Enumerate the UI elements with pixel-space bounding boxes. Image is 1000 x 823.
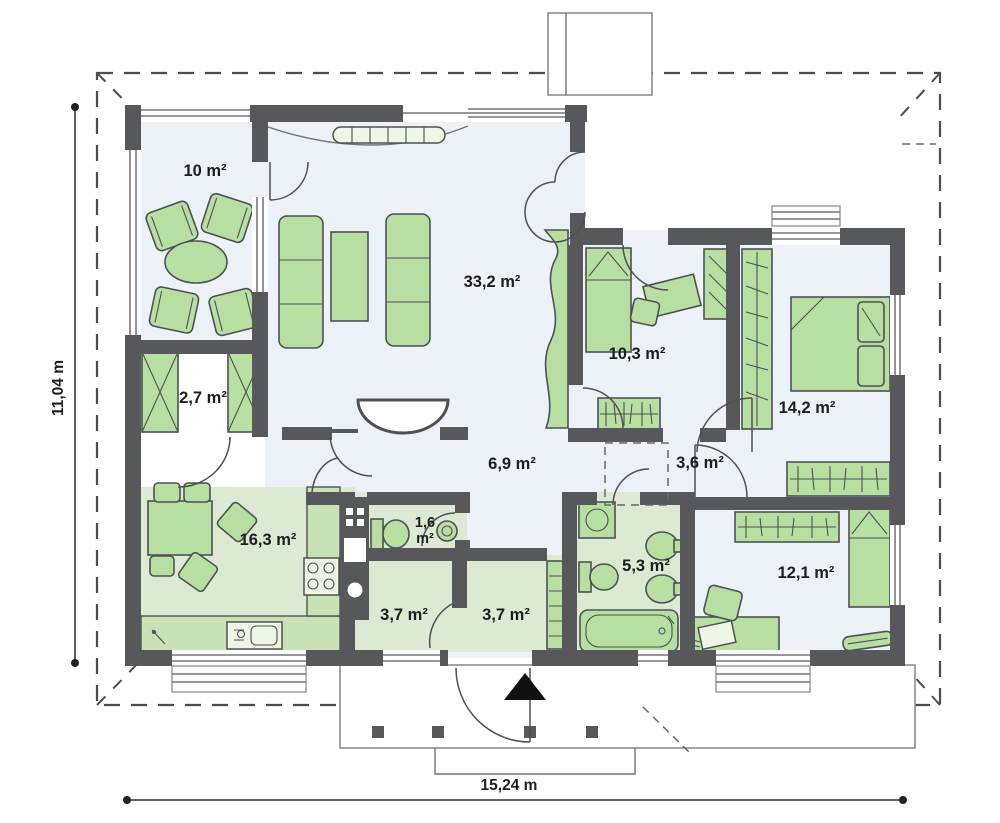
window xyxy=(383,650,440,666)
washing-machine xyxy=(579,502,615,538)
height-dimension: 11,04 m xyxy=(50,360,67,416)
room-area-label: 33,2 m² xyxy=(464,273,521,291)
bed-single xyxy=(849,508,890,607)
floor-plan-page: 10 m² 33,2 m² 10,3 m² 14,2 m² 2,7 m² 6,9… xyxy=(0,0,1000,823)
window-sill xyxy=(772,206,840,226)
room-area-label: 10 m² xyxy=(183,162,227,180)
room-area-label: 3,7 m² xyxy=(482,606,530,624)
width-dimension: 15,24 m xyxy=(481,777,538,794)
coffee-table xyxy=(331,232,368,321)
window xyxy=(772,228,840,245)
sofa xyxy=(279,216,323,348)
kitchen-counter-side xyxy=(307,487,340,616)
room-area-label: 14,2 m² xyxy=(779,399,836,417)
room-area-label: 12,1 m² xyxy=(778,564,835,582)
porch-step xyxy=(435,748,635,774)
window xyxy=(468,105,565,122)
porch xyxy=(340,665,915,774)
radiator xyxy=(333,127,445,143)
dining-table xyxy=(148,501,212,555)
bathtub xyxy=(580,610,678,652)
chair xyxy=(150,556,174,576)
toilet-bowl xyxy=(383,520,409,548)
porch-column xyxy=(586,726,598,738)
porch-column xyxy=(432,726,444,738)
sofa xyxy=(386,214,430,346)
stove xyxy=(304,558,339,595)
chair xyxy=(630,298,660,327)
window xyxy=(716,650,810,666)
corner-basin xyxy=(437,521,457,541)
window xyxy=(172,650,306,666)
room-area-label: 5,3 m² xyxy=(622,557,670,575)
window xyxy=(125,150,141,335)
terrace-table xyxy=(165,241,227,283)
toilet-bowl xyxy=(590,564,618,590)
room-area-label: 16,3 m² xyxy=(240,531,297,549)
toilet-tank xyxy=(371,519,383,549)
chair xyxy=(154,483,180,502)
chimney-outline xyxy=(548,13,652,95)
glazed-partition xyxy=(252,197,268,292)
window xyxy=(890,525,905,605)
room-area-label: 2,7 m² xyxy=(179,389,227,407)
window-sill xyxy=(172,666,306,692)
window-sill xyxy=(716,666,810,692)
wc-storage-floor xyxy=(355,492,467,652)
porch-column xyxy=(372,726,384,738)
room-area-unit: m² xyxy=(416,531,434,547)
room-area-label: 6,9 m² xyxy=(488,455,536,473)
rear-terrace-floor xyxy=(585,112,897,230)
window xyxy=(141,105,250,122)
window xyxy=(890,295,905,375)
room-area-label: 1,6 xyxy=(415,515,435,531)
room-area-label: 10,3 m² xyxy=(609,345,666,363)
floor-plan-canvas: 10 m² 33,2 m² 10,3 m² 14,2 m² 2,7 m² 6,9… xyxy=(0,0,1000,823)
room-area-label: 3,7 m² xyxy=(380,606,428,624)
room-area-label: 3,6 m² xyxy=(676,454,724,472)
window xyxy=(403,105,468,122)
bed-single xyxy=(586,248,631,352)
window xyxy=(638,650,668,666)
